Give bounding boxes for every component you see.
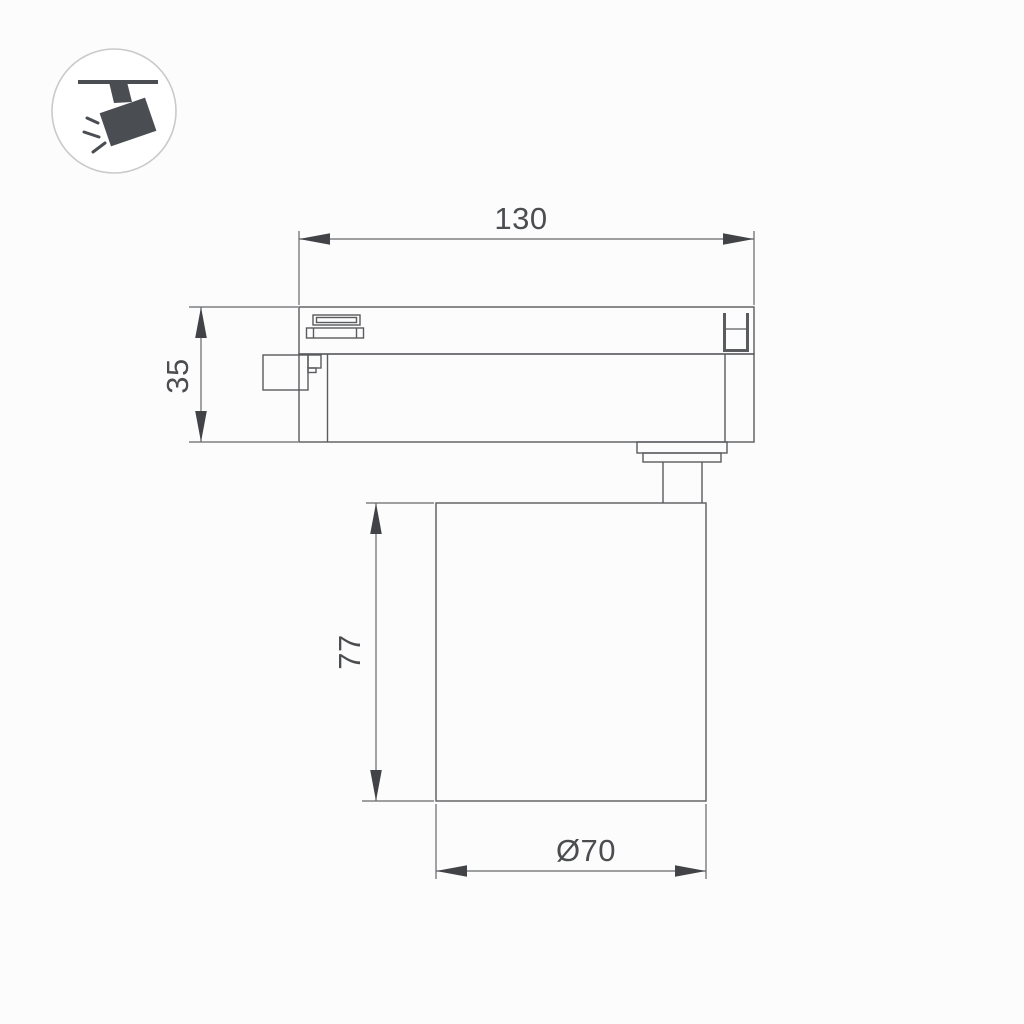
lamp-head-cylinder [436, 503, 706, 801]
swivel-step-lower [643, 453, 721, 462]
contact-slot-outer [313, 315, 360, 325]
swivel-step-upper [637, 442, 727, 453]
arrow-up-icon [370, 503, 382, 534]
part-outlines [263, 307, 754, 801]
clamp-bracket [725, 313, 748, 351]
contact-slot-inner [317, 318, 357, 323]
dimension-arrows [195, 233, 754, 877]
dim-label-body-diameter: Ø70 [556, 833, 616, 868]
arrow-right-icon [675, 865, 706, 877]
lever-notch-step [308, 368, 316, 373]
dimension-lines [189, 231, 754, 879]
adapter-arm-body [299, 354, 754, 442]
luminaire-dimension-drawing: 130 35 77 Ø70 [0, 0, 1024, 1024]
contact-strip [307, 328, 364, 338]
lever-notch [308, 355, 321, 368]
track-spotlight-icon [52, 49, 176, 173]
locking-lever [263, 355, 308, 390]
dim-label-body-height: 77 [332, 634, 367, 669]
arrow-left-icon [299, 233, 330, 245]
dim-label-track-length: 130 [494, 201, 547, 236]
technical-drawing-page: 130 35 77 Ø70 [0, 0, 1024, 1024]
dim-label-adapter-height: 35 [160, 358, 195, 393]
dimension-labels: 130 35 77 Ø70 [160, 201, 616, 868]
arrow-down-icon [195, 411, 207, 442]
track-adapter-plate [299, 307, 754, 354]
arrow-up-icon [195, 307, 207, 338]
arrow-down-icon [370, 770, 382, 801]
arrow-left-icon [436, 865, 467, 877]
arrow-right-icon [723, 233, 754, 245]
